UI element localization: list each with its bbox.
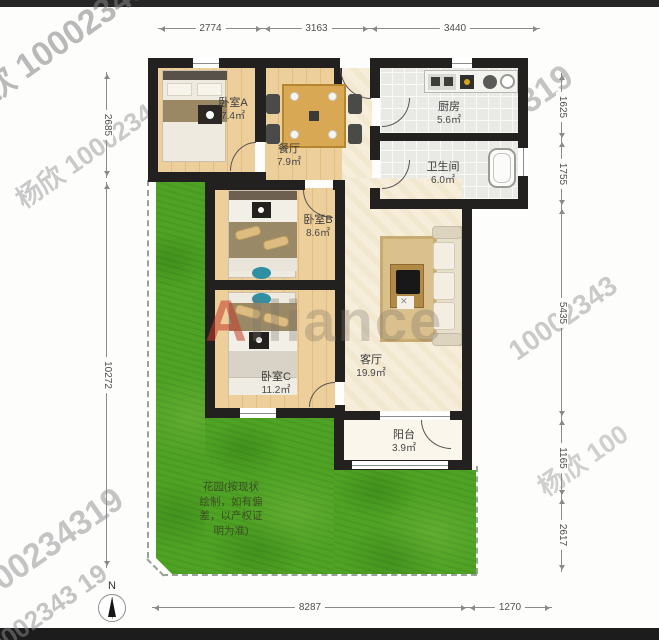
dimension-value: 1165 — [556, 443, 568, 473]
dimension-value: 5435 — [556, 297, 568, 327]
wall — [518, 68, 528, 150]
room-area: 6.0㎡ — [427, 174, 460, 188]
dimension-right-2: 1755 — [561, 140, 562, 207]
room-area: 8.6㎡ — [303, 227, 332, 241]
room-name: 卧室C — [261, 370, 291, 384]
plate — [290, 92, 299, 101]
watermark-text: 杨欣 100 — [529, 414, 634, 503]
garden-disclaimer: 花园(按现状 绘制，如有偏 差，以产权证 明为准) — [200, 480, 263, 538]
kitchen-counter — [424, 70, 518, 93]
burner — [431, 77, 440, 86]
dimension-right-3: 5435 — [561, 207, 562, 418]
dot — [206, 111, 214, 119]
wall — [205, 180, 305, 190]
window — [518, 148, 528, 176]
dimension-value: 1625 — [556, 91, 568, 121]
balcony-sliding-door-glass — [380, 412, 450, 419]
wall — [333, 180, 345, 190]
dimension-value: 1755 — [556, 158, 568, 188]
plate — [328, 92, 337, 101]
plate — [328, 130, 337, 139]
garden-dashed-border-bottom — [162, 574, 477, 576]
dining-table — [282, 84, 346, 148]
dimension-value: 3163 — [301, 22, 331, 35]
garden-left-strip — [156, 182, 206, 574]
dining-chair — [266, 124, 280, 144]
window — [240, 408, 276, 418]
room-label-bedroom-b: 卧室B 8.6㎡ — [303, 213, 332, 241]
sofa-cushion — [433, 302, 455, 330]
garden-below-balcony — [334, 470, 476, 574]
wall — [148, 58, 340, 68]
garden-disclaimer-line: 明为准) — [200, 524, 263, 539]
coffee-table — [390, 264, 424, 308]
floorplan-canvas: 欣 1000234319 杨欣 10002343 1000234319 1000… — [0, 0, 659, 640]
dimension-left-1: 2685 — [106, 72, 107, 178]
bed-a — [162, 70, 226, 162]
room-area: 19.9㎡ — [356, 367, 385, 381]
sofa-cushion — [433, 242, 455, 270]
burner — [444, 77, 453, 86]
wall — [148, 58, 158, 182]
room-name: 餐厅 — [277, 142, 301, 156]
room-label-bathroom: 卫生间 6.0㎡ — [427, 160, 460, 188]
sofa-armrest — [432, 226, 462, 239]
dimension-value: 2774 — [195, 22, 225, 35]
dimension-right-5: 2617 — [561, 497, 562, 572]
room-name: 卧室B — [303, 213, 332, 227]
bottom-crop-bar — [0, 628, 659, 640]
pillow — [197, 83, 222, 96]
table-centerpiece — [309, 111, 319, 121]
room-area: 5.6㎡ — [437, 114, 461, 128]
dot — [256, 337, 262, 343]
wall — [370, 188, 380, 209]
stove — [428, 74, 456, 90]
wall — [205, 280, 345, 290]
bed-b-headboard — [229, 191, 297, 200]
dot — [464, 79, 470, 85]
dimension-right-4: 1165 — [561, 418, 562, 497]
window — [452, 58, 472, 68]
dimension-value: 2617 — [556, 519, 568, 549]
room-name: 客厅 — [356, 353, 385, 367]
sink-basin — [500, 74, 515, 89]
bathtub-inner — [493, 153, 511, 183]
wall — [462, 209, 472, 420]
garden-disclaimer-line: 绘制，如有偏 — [200, 495, 263, 510]
dimension-value: 8287 — [295, 601, 325, 614]
dimension-value: 2685 — [101, 110, 113, 140]
compass-ring — [98, 594, 126, 622]
wall — [255, 68, 266, 142]
sofa-cushion — [433, 272, 455, 300]
room-name: 厨房 — [437, 100, 461, 114]
dining-chair — [348, 94, 362, 114]
room-area: 3.9㎡ — [392, 442, 416, 456]
room-label-balcony: 阳台 3.9㎡ — [392, 428, 416, 456]
table-card — [397, 296, 414, 309]
room-area: 11.2㎡ — [261, 384, 291, 398]
wall — [370, 126, 380, 160]
dimension-bottom-1: 8287 — [152, 607, 468, 608]
room-name: 卧室A — [218, 96, 247, 110]
table-decor — [396, 270, 420, 294]
garden-dashed-border-right — [476, 466, 478, 574]
cooktop — [460, 75, 474, 89]
top-crop-bar — [0, 0, 659, 7]
room-label-kitchen: 厨房 5.6㎡ — [437, 100, 461, 128]
garden-disclaimer-line: 差，以产权证 — [200, 509, 263, 524]
wall — [205, 180, 215, 418]
garden-dashed-border-left — [147, 180, 149, 558]
window — [193, 58, 219, 68]
dimension-bottom-2: 1270 — [468, 607, 552, 608]
bed-b-fan — [252, 267, 271, 279]
dimension-left-2: 10272 — [106, 182, 107, 568]
dimension-value: 10272 — [101, 357, 113, 393]
bathtub — [488, 148, 516, 188]
wall — [380, 199, 528, 209]
wall — [370, 68, 380, 98]
wall — [518, 176, 528, 209]
north-compass: N — [96, 580, 128, 622]
bed-a-headboard — [163, 71, 227, 80]
room-label-bedroom-a: 卧室A 7.4㎡ — [218, 96, 247, 124]
wall — [335, 190, 345, 382]
sofa-armrest — [432, 333, 462, 346]
dimension-top-3: 3440 — [370, 28, 540, 29]
wall — [370, 58, 528, 68]
room-label-dining: 餐厅 7.9㎡ — [277, 142, 301, 170]
plate — [290, 130, 299, 139]
dimension-value: 3440 — [440, 22, 470, 35]
room-area: 7.4㎡ — [218, 110, 247, 124]
dining-chair — [266, 94, 280, 114]
bed-b-accent — [252, 202, 271, 218]
dimension-right-1: 1625 — [561, 73, 562, 140]
bed-b — [228, 190, 296, 278]
dimension-value: 1270 — [495, 601, 525, 614]
dimension-top-2: 3163 — [263, 28, 370, 29]
garden-disclaimer-line: 花园(按现状 — [200, 480, 263, 495]
dot — [258, 207, 264, 213]
north-label: N — [96, 580, 128, 592]
sink-basin — [483, 75, 497, 89]
room-label-bedroom-c: 卧室C 11.2㎡ — [261, 370, 291, 398]
room-area: 7.9㎡ — [277, 156, 301, 170]
dimension-top-1: 2774 — [158, 28, 263, 29]
wall — [380, 133, 528, 141]
balcony-window — [352, 461, 448, 469]
dining-chair — [348, 124, 362, 144]
bed-c-accent — [249, 332, 269, 349]
room-label-living: 客厅 19.9㎡ — [356, 353, 385, 381]
room-name: 阳台 — [392, 428, 416, 442]
compass-needle-icon — [108, 597, 116, 617]
room-name: 卫生间 — [427, 160, 460, 174]
pillow — [167, 83, 192, 96]
